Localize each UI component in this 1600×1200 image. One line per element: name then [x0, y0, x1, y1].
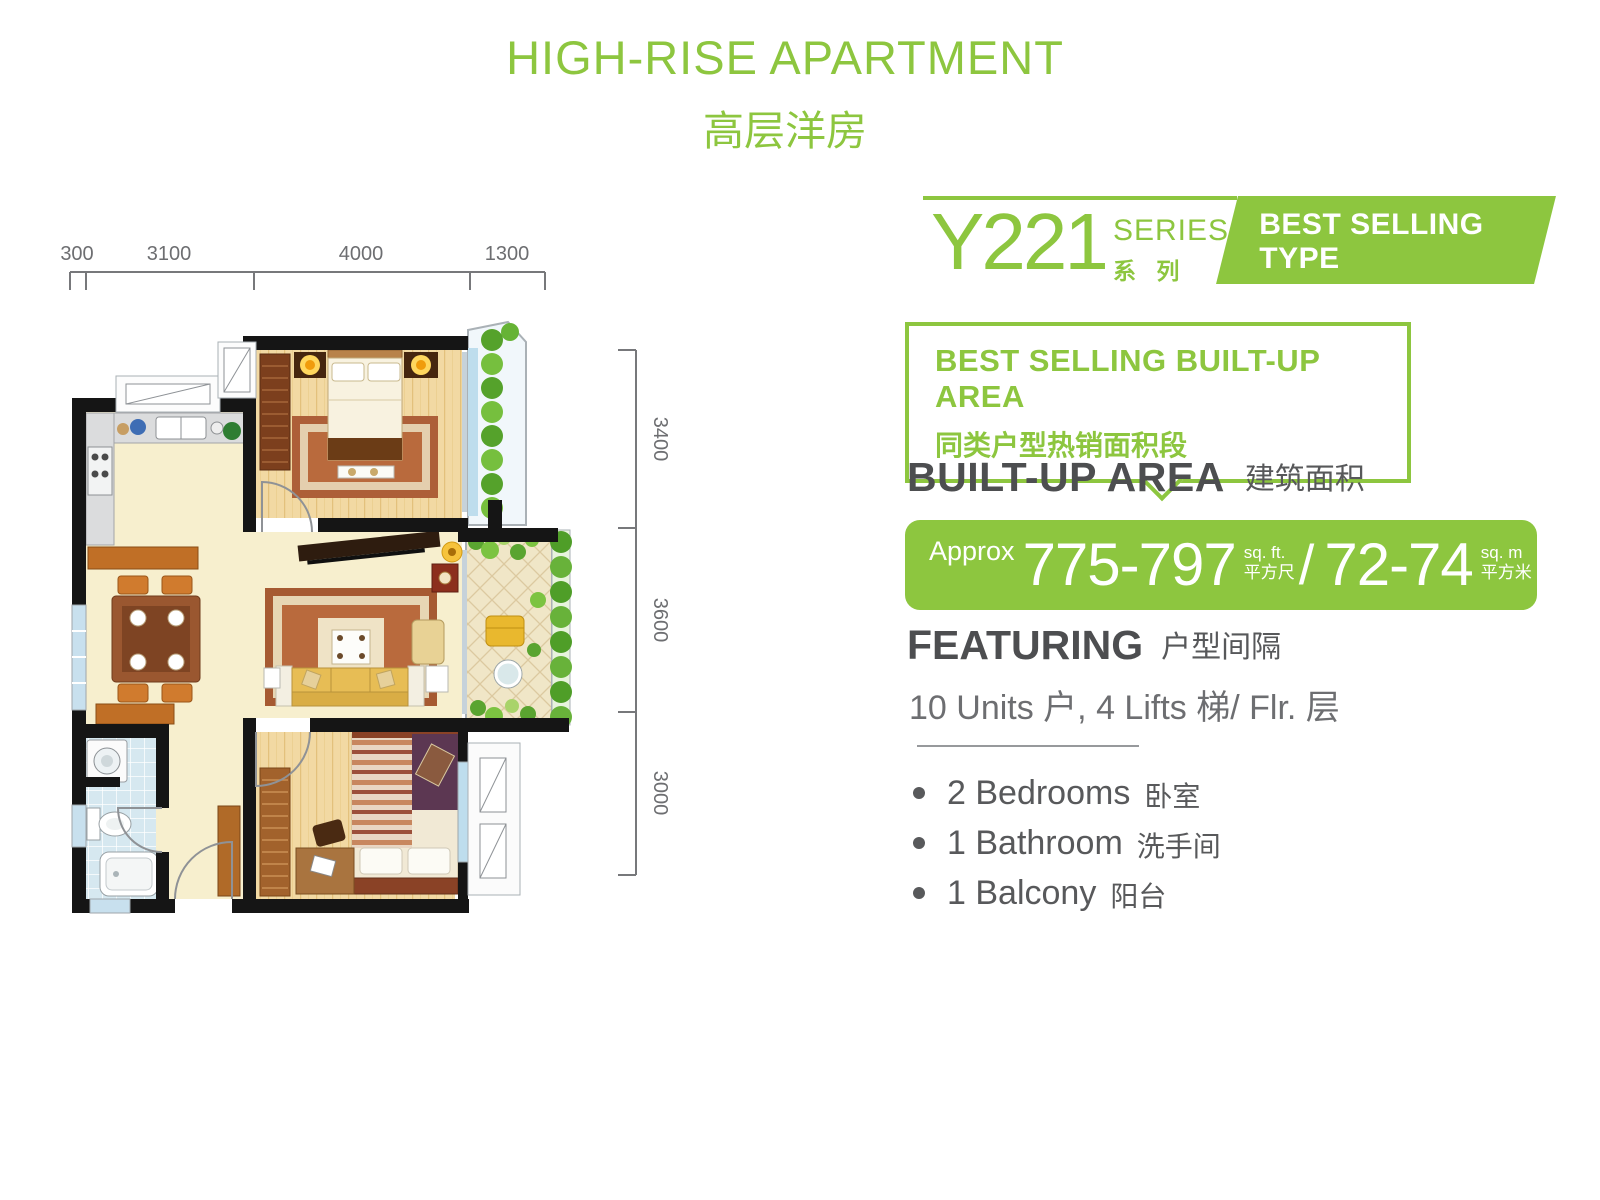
plant-icon — [223, 422, 241, 440]
dim-label-3100: 3100 — [147, 243, 192, 265]
dim-label-300: 300 — [60, 243, 93, 265]
washing-machine-icon — [87, 740, 127, 782]
feature-item-bedrooms: 2 Bedrooms 卧室 — [913, 768, 1221, 818]
armchair-icon — [412, 620, 444, 664]
series-header: Y221 SERIES 系 列 BEST SELLING TYPE 热销户型 — [905, 188, 1553, 308]
dim-label-1300: 1300 — [485, 243, 530, 265]
bay-window-icon — [468, 743, 520, 895]
lounge-chair-icon — [486, 616, 524, 646]
best-selling-badge: BEST SELLING TYPE 热销户型 — [1216, 196, 1556, 284]
feature-zh: 洗手间 — [1137, 822, 1221, 865]
dim-label-3400: 3400 — [649, 417, 671, 462]
badge-line2: 热销户型 — [1259, 279, 1541, 314]
single-bed-icon — [352, 732, 458, 894]
area-banner: Approx 775-797 sq. ft. 平方尺 / 72-74 sq. m… — [905, 520, 1537, 610]
feature-en: 1 Bathroom — [947, 824, 1123, 863]
info-panel: Y221 SERIES 系 列 BEST SELLING TYPE 热销户型 B… — [905, 188, 1553, 308]
wardrobe-icon — [260, 768, 290, 896]
hall-cabinet-icon — [218, 806, 240, 896]
feature-list: 2 Bedrooms 卧室 1 Bathroom 洗手间 1 Balcony 阳… — [913, 768, 1221, 918]
bowl-icon — [130, 419, 146, 435]
slash-separator: / — [1299, 537, 1315, 593]
feature-en: 2 Bedrooms — [947, 774, 1130, 813]
bedroom-balcony — [462, 322, 526, 525]
series-label-zh: 系 列 — [1113, 252, 1229, 286]
badge-line1: BEST SELLING TYPE — [1259, 208, 1541, 276]
units-lifts-line: 10 Units 户, 4 Lifts 梯/ Flr. 层 — [909, 680, 1340, 729]
series-label: SERIES 系 列 — [1113, 214, 1229, 286]
featuring-label-zh: 户型间隔 — [1161, 622, 1281, 669]
featuring-label-en: FEATURING — [907, 622, 1143, 669]
page-header: HIGH-RISE APARTMENT 高层洋房 — [0, 30, 1570, 157]
feature-item-bathroom: 1 Bathroom 洗手间 — [913, 818, 1221, 868]
feature-zh: 卧室 — [1144, 772, 1200, 815]
dim-label-4000: 4000 — [339, 243, 384, 265]
sqft-value: 775-797 — [1023, 535, 1236, 595]
sideboard-icon — [88, 547, 198, 569]
sqm-units: sq. m 平方米 — [1481, 543, 1532, 584]
double-bed-icon — [328, 350, 402, 478]
sqm-value: 72-74 — [1324, 535, 1472, 595]
series-code: Y221 — [931, 202, 1106, 282]
sqm-unit-zh: 平方米 — [1481, 563, 1532, 583]
dimension-ruler-top: 300 3100 4000 1300 — [55, 228, 595, 294]
bathtub-icon — [100, 852, 158, 896]
page-title-chinese: 高层洋房 — [0, 97, 1570, 157]
bullet-icon — [913, 837, 925, 849]
approx-label: Approx — [929, 536, 1015, 567]
dim-label-3600: 3600 — [649, 598, 671, 643]
sqft-units: sq. ft. 平方尺 — [1244, 543, 1295, 584]
callout-line1: BEST SELLING BUILT-UP AREA — [935, 343, 1407, 415]
feature-en: 1 Balcony — [947, 874, 1096, 913]
wardrobe-icon — [260, 354, 290, 470]
featuring-heading: FEATURING 户型间隔 — [907, 622, 1281, 669]
sqft-unit-zh: 平方尺 — [1244, 563, 1295, 583]
sqm-unit-en: sq. m — [1481, 543, 1532, 563]
built-up-area-heading: BUILT-UP AREA 建筑面积 — [907, 454, 1365, 501]
living-balcony — [462, 530, 572, 728]
stove-icon — [88, 447, 112, 495]
bullet-icon — [913, 787, 925, 799]
bathroom-window-icon — [72, 805, 86, 847]
dim-label-3000: 3000 — [649, 771, 671, 816]
coffee-table-icon — [332, 630, 370, 664]
floor-plan — [60, 300, 580, 920]
sofa-icon — [276, 666, 424, 706]
feature-item-balcony: 1 Balcony 阳台 — [913, 868, 1221, 918]
dimension-ruler-right: 3400 3600 3000 — [602, 342, 682, 887]
series-label-en: SERIES — [1113, 214, 1229, 248]
divider-line — [917, 745, 1139, 747]
sqft-unit-en: sq. ft. — [1244, 543, 1295, 563]
built-up-area-label-zh: 建筑面积 — [1245, 454, 1365, 501]
page-title: HIGH-RISE APARTMENT — [0, 30, 1570, 85]
bullet-icon — [913, 887, 925, 899]
feature-zh: 阳台 — [1110, 872, 1166, 915]
built-up-area-label-en: BUILT-UP AREA — [907, 454, 1225, 501]
